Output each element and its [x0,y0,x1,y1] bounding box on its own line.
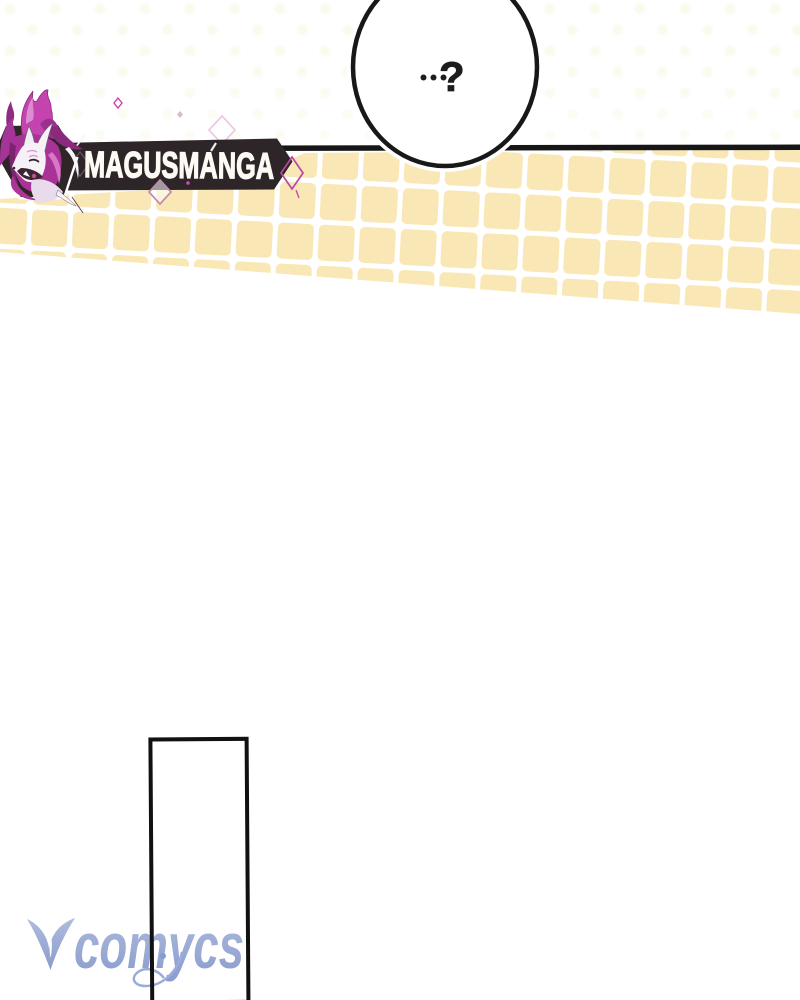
svg-text:comycs: comycs [74,910,244,982]
svg-text:?: ? [439,53,465,100]
svg-text:MAGUSMANGA: MAGUSMANGA [84,144,274,187]
